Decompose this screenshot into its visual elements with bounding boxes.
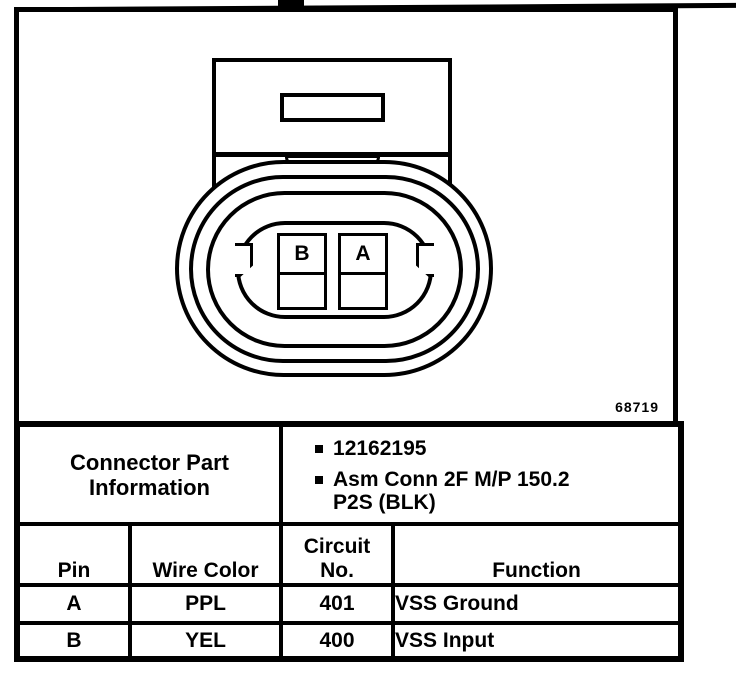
pin-b-label: B [280,236,324,272]
wire-color-cell: PPL [130,585,281,623]
pin-b-slot: B [277,233,327,310]
circuit-no-cell: 400 [281,623,393,659]
function-cell: VSS Input [393,623,681,659]
pin-a-slot: A [338,233,388,310]
connector-lock-window [280,93,385,122]
connector-cavity [236,221,433,319]
list-item: Asm Conn 2F M/P 150.2 P2S (BLK) [315,468,678,514]
scan-artifact-blob [278,0,304,7]
function-cell: VSS Ground [393,585,681,623]
bullet-icon [315,445,323,453]
pin-cell: B [17,623,130,659]
scanned-page: B A 68719 Connector Part Information [0,0,736,694]
part-info-details: 12162195 Asm Conn 2F M/P 150.2 P2S (BLK) [281,424,681,524]
connector-part-table: Connector Part Information 12162195 Asm … [14,421,684,662]
bullet-icon [315,476,323,484]
list-item: 12162195 [315,437,678,460]
header-row: Pin Wire Color Circuit No. Function [17,524,681,585]
col-header-wire-color: Wire Color [130,524,281,585]
pin-cell: A [17,585,130,623]
pin-a-divider [341,272,385,275]
table-row: B YEL 400 VSS Input [17,623,681,659]
wire-color-cell: YEL [130,623,281,659]
part-number-text: 12162195 [333,437,426,460]
col-header-function: Function [393,524,681,585]
pin-a-label: A [341,236,385,272]
figure-number: 68719 [615,399,659,415]
connector-diagram: B A 68719 [14,7,678,421]
part-info-row: Connector Part Information 12162195 Asm … [17,424,681,524]
part-description-text: Asm Conn 2F M/P 150.2 P2S (BLK) [333,468,570,514]
table-row: A PPL 401 VSS Ground [17,585,681,623]
circuit-no-cell: 401 [281,585,393,623]
col-header-pin: Pin [17,524,130,585]
part-info-bullet-list: 12162195 Asm Conn 2F M/P 150.2 P2S (BLK) [283,427,678,514]
part-info-label: Connector Part Information [17,424,281,524]
connector-figure: B A 68719 Connector Part Information [14,7,678,653]
pin-b-divider [280,272,324,275]
col-header-circuit-no: Circuit No. [281,524,393,585]
